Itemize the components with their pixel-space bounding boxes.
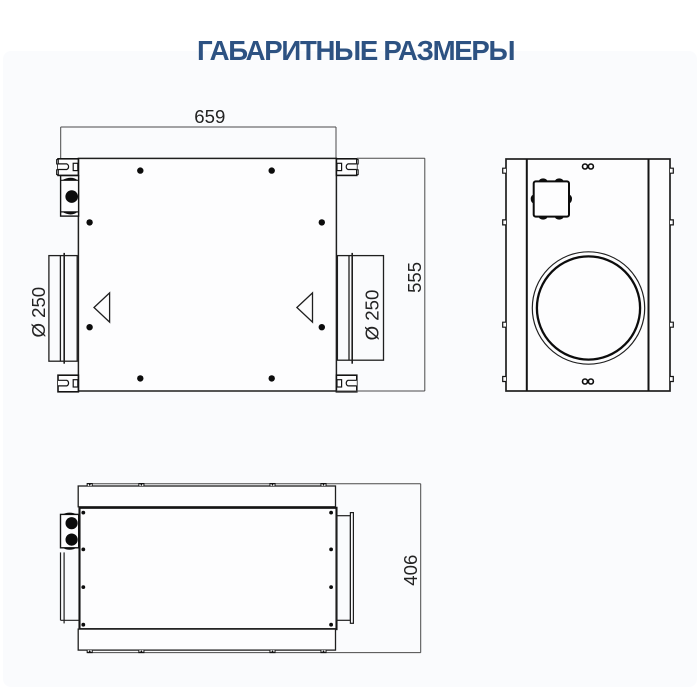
svg-text:ГАБАРИТНЫЕ РАЗМЕРЫ: ГАБАРИТНЫЕ РАЗМЕРЫ	[197, 35, 515, 66]
svg-text:Ø 250: Ø 250	[28, 287, 49, 338]
svg-text:406: 406	[400, 555, 421, 586]
svg-text:659: 659	[194, 106, 225, 127]
svg-text:Ø 250: Ø 250	[362, 290, 383, 341]
svg-text:555: 555	[404, 262, 425, 293]
